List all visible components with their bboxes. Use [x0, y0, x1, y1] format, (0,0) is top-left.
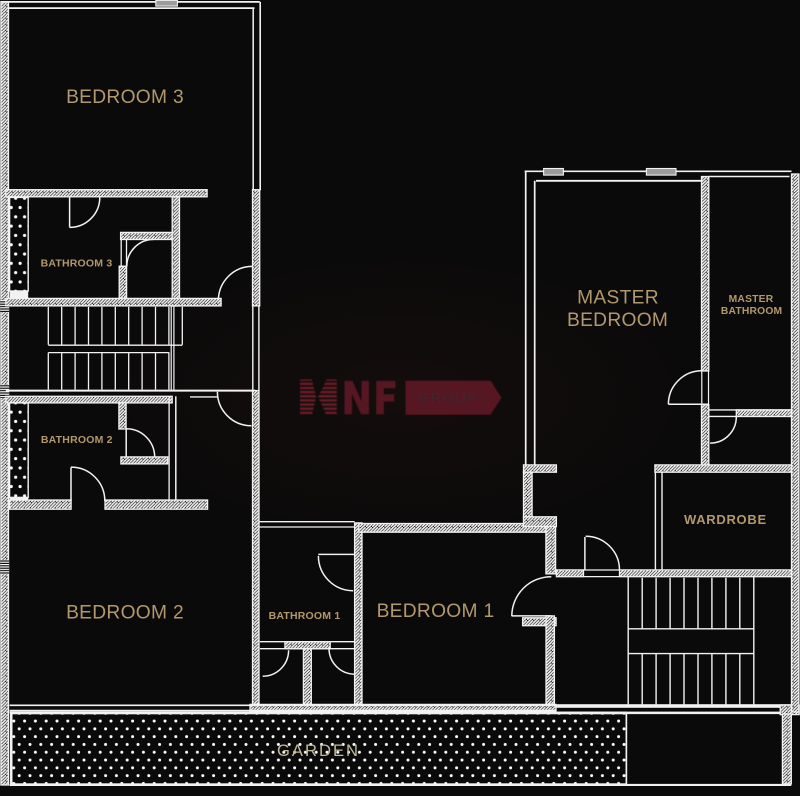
svg-text:GROUP: GROUP [419, 390, 479, 406]
svg-text:BEDROOM: BEDROOM [567, 310, 668, 331]
svg-text:GARDEN: GARDEN [277, 741, 360, 760]
svg-text:BATHROOM 3: BATHROOM 3 [41, 257, 113, 269]
svg-text:BEDROOM 3: BEDROOM 3 [66, 87, 184, 108]
svg-text:BATHROOM: BATHROOM [721, 306, 782, 317]
svg-text:WARDROBE: WARDROBE [684, 512, 767, 527]
svg-text:MASTER: MASTER [729, 294, 774, 305]
svg-text:BEDROOM 2: BEDROOM 2 [66, 603, 184, 624]
svg-text:BATHROOM 1: BATHROOM 1 [269, 610, 341, 622]
svg-text:BEDROOM 1: BEDROOM 1 [377, 601, 495, 622]
svg-text:BATHROOM 2: BATHROOM 2 [41, 434, 113, 446]
svg-text:MASTER: MASTER [577, 287, 659, 308]
